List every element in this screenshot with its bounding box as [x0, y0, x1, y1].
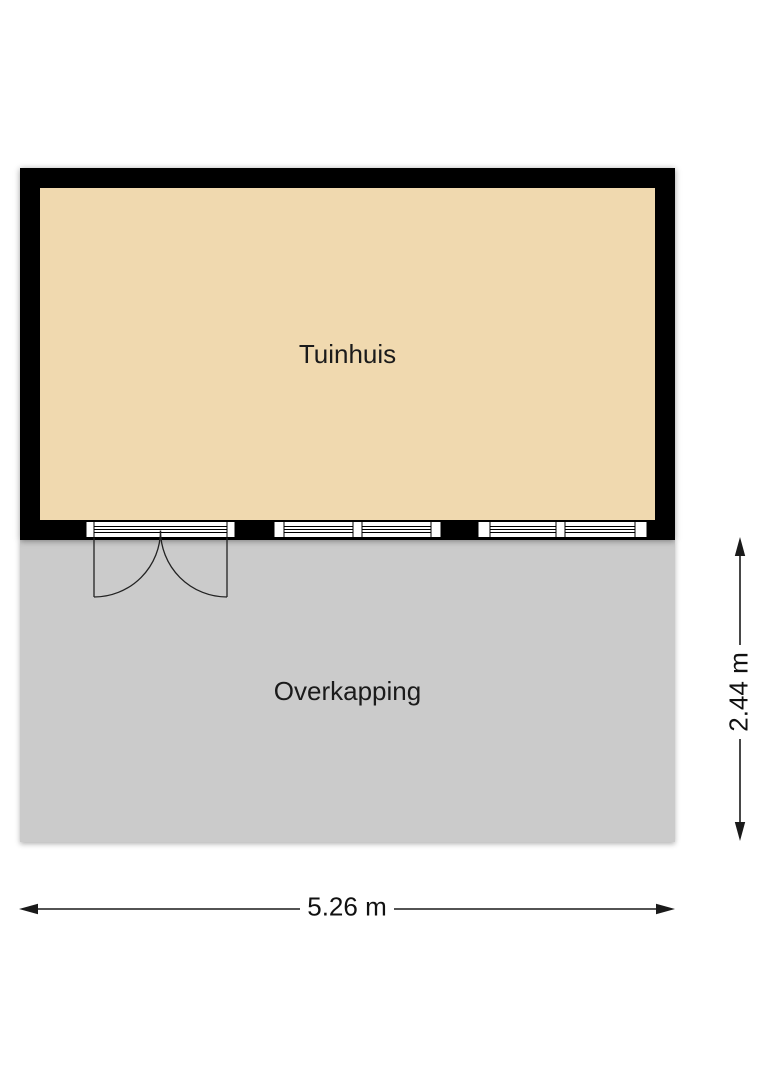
arrowhead-down-icon [735, 822, 745, 841]
tuinhuis-room: Tuinhuis [20, 168, 675, 540]
arrowhead-up-icon [735, 537, 745, 556]
overkapping-label: Overkapping [274, 676, 421, 707]
width-dimension-label: 5.26 m [307, 892, 387, 923]
arrowhead-right-icon [656, 904, 675, 914]
floorplan-canvas: Overkapping Tuinhuis [0, 0, 764, 1080]
arrowhead-left-icon [19, 904, 38, 914]
tuinhuis-label: Tuinhuis [299, 339, 396, 370]
overkapping-area: Overkapping [20, 540, 675, 842]
depth-dimension-label: 2.44 m [724, 652, 755, 732]
